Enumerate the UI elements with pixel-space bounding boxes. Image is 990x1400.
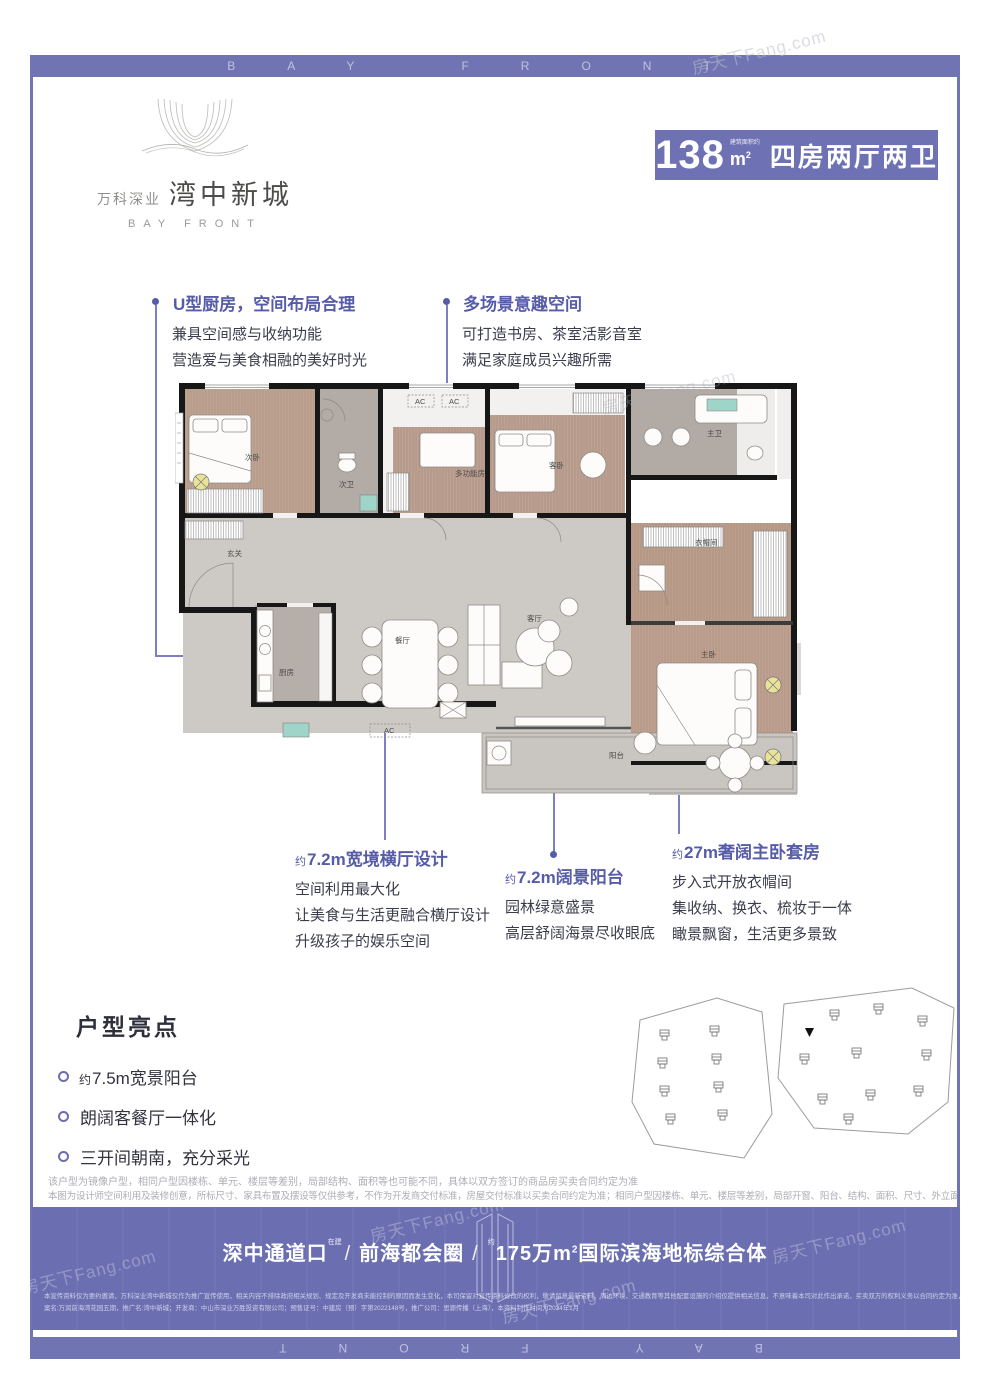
annotation-multiroom: 多场景意趣空间 可打造书房、茶室活影音室 满足家庭成员兴趣所需 <box>462 290 642 374</box>
label-balcony: 阳台 <box>609 750 624 760</box>
annotation-hall: 约7.2m宽境横厅设计 空间利用最大化 让美食与生活更融合横厅设计 升级孩子的娱… <box>295 845 490 955</box>
label-secondary-bedroom: 次卧 <box>245 452 260 462</box>
bottom-banner: 深中通道口在建/前海都会圈/约175万m2国际滨海地标综合体 本宣传资料仅为要约… <box>30 1207 960 1330</box>
tower-logo-icon <box>140 95 250 165</box>
project-name-en: BAY FRONT <box>85 218 305 230</box>
ring-bullet-icon <box>58 1151 69 1162</box>
highlight-item: 三开间朝南，充分采光 <box>58 1144 250 1169</box>
disclaimer-line-1: 该户型为镜像户型，相同户型因楼栋、单元、楼层等差别，局部结构、面积等也可能不同，… <box>48 1173 958 1188</box>
annotation-kitchen: U型厨房，空间布局合理 兼具空间感与收纳功能 营造爱与美食相融的美好时光 <box>172 290 367 374</box>
frame-left-line <box>30 55 33 1359</box>
highlights-section: 户型亮点 约7.5m宽景阳台 朗阔客餐厅一体化 三开间朝南，充分采光 <box>58 1008 250 1184</box>
tower-plate-b <box>778 988 954 1134</box>
highlight-item: 约7.5m宽景阳台 <box>58 1064 250 1089</box>
project-name: 湾中新城 <box>169 180 293 210</box>
frame-bottom-text: BAY FRONT <box>30 1337 960 1359</box>
project-logo: 万科深业湾中新城 BAY FRONT <box>85 95 305 230</box>
area-badge: 138 建筑面积约 m2 四房两厅两卫 <box>655 130 938 180</box>
frame-top-band: BAY FRONT <box>30 55 960 77</box>
highlight-item: 朗阔客餐厅一体化 <box>58 1104 250 1129</box>
label-secondary-bath: 次卫 <box>339 479 354 489</box>
label-cloakroom: 衣帽间 <box>695 537 718 547</box>
site-plates <box>622 982 962 1177</box>
area-unit: 建筑面积约 m2 <box>730 140 760 170</box>
label-ac-1: AC <box>415 397 426 406</box>
label-master-bath: 主卫 <box>707 428 722 438</box>
banner-headline: 深中通道口在建/前海都会圈/约175万m2国际滨海地标综合体 <box>30 1237 960 1266</box>
label-kitchen: 厨房 <box>279 667 294 677</box>
ring-bullet-icon <box>58 1111 69 1122</box>
layout-label: 四房两厅两卫 <box>770 137 938 174</box>
area-note: 建筑面积约 <box>730 140 760 147</box>
label-dining: 餐厅 <box>395 636 410 645</box>
brand-name: 万科深业 <box>97 191 161 207</box>
legal-line-2: 案名:万润前海湾花园五期，推广名:湾中新城；开发商：中山市深业万胜投资有限公司；… <box>30 1302 960 1314</box>
banner-main: 深中通道口在建/前海都会圈/约175万m2国际滨海地标综合体 <box>30 1207 960 1290</box>
callout-line-kitchen-v <box>155 305 157 656</box>
annotation-master: 约27m奢阔主卧套房 步入式开放衣帽间 集收纳、换衣、梳妆于一体 瞰景飘窗，生活… <box>672 838 852 948</box>
floorplan: 次卧 次卫 多功能房 客卧 主卫 玄关 厨房 餐厅 客厅 衣帽间 主卧 阳台 A… <box>175 375 805 805</box>
callout-dot-balcony <box>550 851 557 858</box>
disclaimer-line-2: 本图为设计师空间利用及装修创意，所标尺寸、家具布置及摆设等仅供参考，不作为开发商… <box>48 1188 958 1202</box>
highlights-title: 户型亮点 <box>76 1008 250 1042</box>
ring-bullet-icon <box>58 1071 69 1082</box>
label-ac-3: AC <box>384 726 395 735</box>
label-master-bedroom: 主卧 <box>701 649 716 659</box>
label-entry: 玄关 <box>227 548 242 558</box>
label-guest-bedroom: 客卧 <box>549 460 564 470</box>
label-living: 客厅 <box>527 613 542 623</box>
flyer-page: BAY FRONT BAY FRONT 万科深业湾中新城 BAY FRONT 1… <box>0 0 990 1400</box>
annotation-balcony: 约7.2m阔景阳台 园林绿意盛景 高层舒阔海景尽收眼底 <box>505 863 655 947</box>
tower-plate-a <box>632 998 772 1158</box>
area-value: 138 <box>655 133 725 178</box>
label-ac-2: AC <box>449 397 460 406</box>
dining-set <box>362 620 458 708</box>
callout-dot-multiroom <box>443 298 450 305</box>
frame-bottom-band: BAY FRONT <box>30 1337 960 1359</box>
label-multi-room: 多功能房 <box>455 468 485 478</box>
callout-dot-kitchen <box>152 298 159 305</box>
